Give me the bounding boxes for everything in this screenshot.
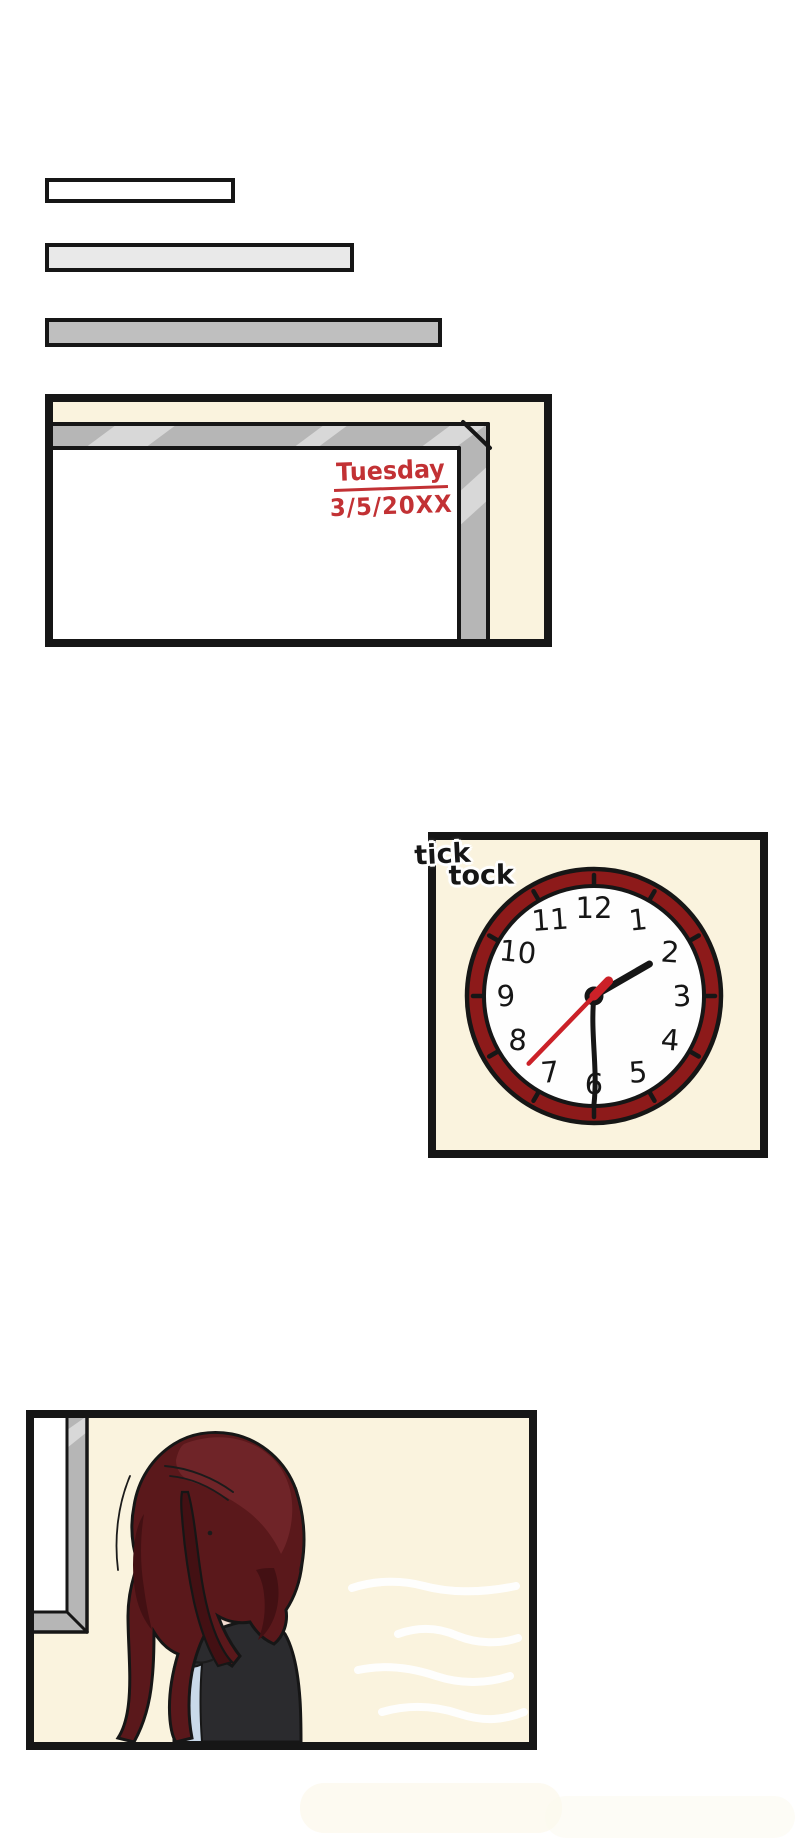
sfx-tock: tock: [448, 862, 514, 890]
clock-number: 9: [496, 979, 516, 1014]
panel-whiteboard: Tuesday 3/5/20XX: [45, 394, 552, 647]
minute-hand: [593, 996, 595, 1104]
clock-number: 12: [576, 891, 613, 925]
blank-text-bar-2: [45, 243, 354, 272]
person-drawing: [34, 1418, 529, 1742]
page-bottom-smudge-2: [545, 1796, 795, 1838]
whiteboard-day: Tuesday: [332, 456, 447, 492]
clock-number: 1: [627, 902, 649, 938]
clock-number: 4: [660, 1022, 681, 1057]
character-woman: [117, 1432, 305, 1742]
whiteboard-drawing: [53, 402, 544, 639]
clock-number: 10: [498, 933, 538, 971]
clock-number: 3: [672, 979, 692, 1014]
mole: [208, 1531, 213, 1536]
whiteboard-date: 3/5/20XX: [329, 492, 453, 521]
air-wave-lines: [352, 1582, 524, 1719]
clock-sfx: tick tock: [414, 837, 515, 892]
clock-number: 2: [660, 934, 681, 969]
panel-clock: tick tock 123456789101112: [428, 832, 768, 1158]
clock-number: 5: [628, 1055, 649, 1090]
comic-page: Tuesday 3/5/20XX tick tock 1234567891011…: [0, 0, 800, 1838]
panel-person: [26, 1410, 537, 1750]
clock-number: 8: [507, 1022, 528, 1057]
blank-text-bar-3: [45, 318, 442, 347]
hair-sketch-left: [117, 1476, 131, 1570]
window-pane: [34, 1418, 67, 1612]
clock-number: 11: [530, 902, 569, 938]
blank-text-bar-1: [45, 178, 235, 203]
clock-number: 7: [539, 1054, 560, 1089]
page-bottom-smudge-1: [300, 1783, 562, 1833]
whiteboard-note: Tuesday 3/5/20XX: [325, 456, 456, 522]
